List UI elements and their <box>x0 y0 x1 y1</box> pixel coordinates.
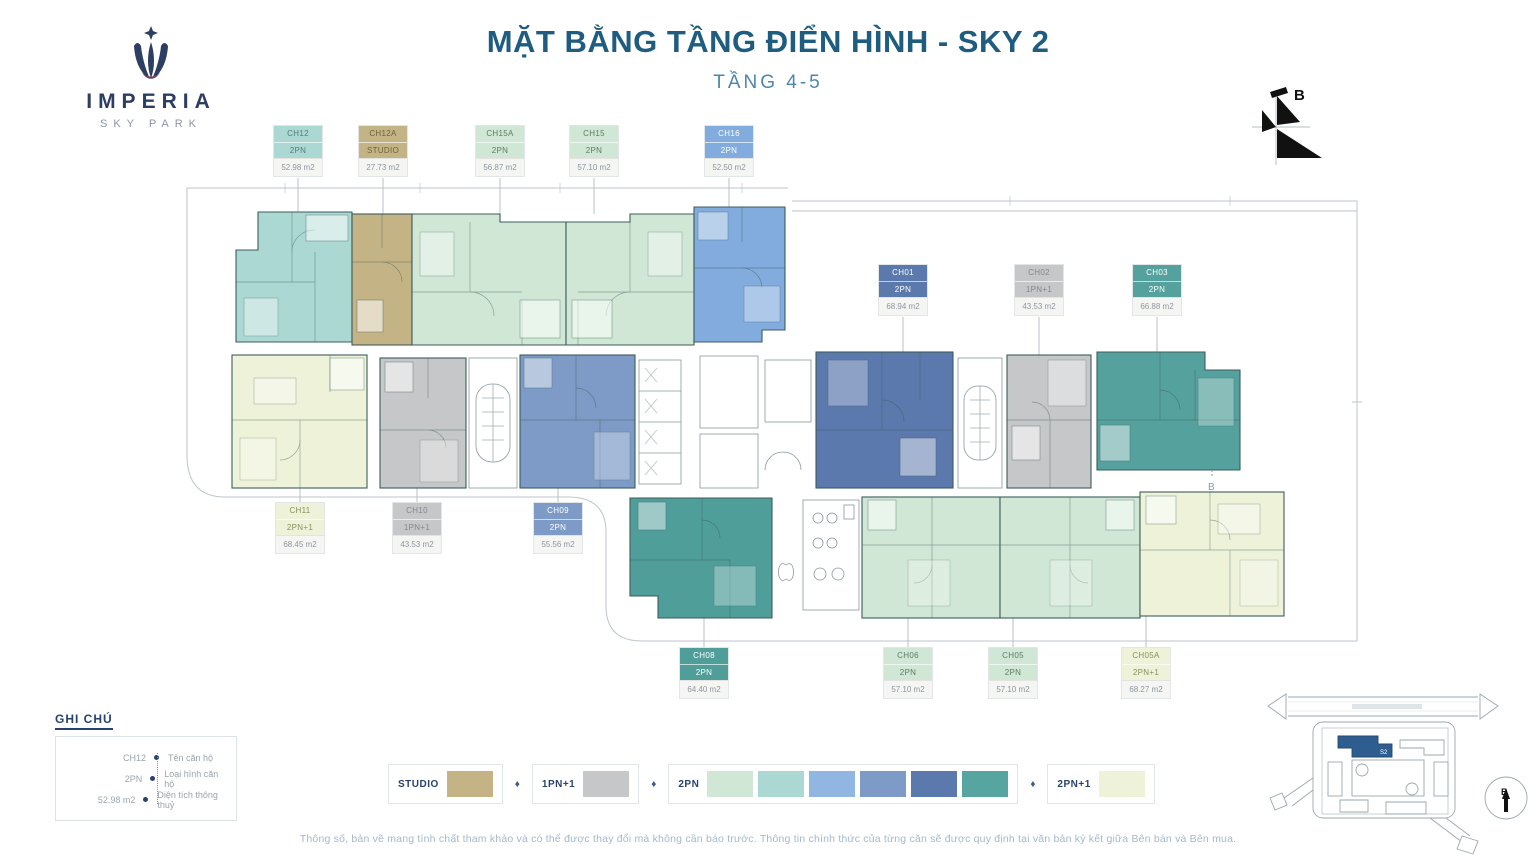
unit-id: CH12A <box>359 126 407 142</box>
notes-legend: GHI CHÚ CH12 Tên căn hộ 2PN Loại hình că… <box>55 710 237 821</box>
unit-shape-ch12 <box>236 212 352 342</box>
unit-area: 66.88 m2 <box>1133 297 1181 315</box>
unit-type: 1PN+1 <box>1015 281 1063 297</box>
unit-id: CH08 <box>680 648 728 664</box>
unit-card-ch01: CH01 2PN 68.94 m2 <box>879 265 927 315</box>
unit-card-ch15: CH15 2PN 57.10 m2 <box>570 126 618 176</box>
notes-key: CH12 <box>56 753 154 763</box>
notes-desc: Loại hình căn hộ <box>155 769 228 789</box>
unit-type: 2PN <box>705 142 753 158</box>
unit-shape-ch03 <box>1097 352 1240 470</box>
unit-type: 1PN+1 <box>393 519 441 535</box>
unit-type: 2PN <box>476 142 524 158</box>
unit-shape-ch02 <box>1007 355 1091 488</box>
notes-connector-line <box>157 753 158 804</box>
notes-desc: Diện tích thông thuỷ <box>148 790 228 810</box>
notes-key: 2PN <box>56 774 150 784</box>
unit-shape-ch08 <box>630 498 772 618</box>
notes-box: CH12 Tên căn hộ 2PN Loại hình căn hộ 52.… <box>55 736 237 821</box>
legend-label: STUDIO <box>398 779 439 790</box>
core-elevators <box>639 356 811 488</box>
notes-row: CH12 Tên căn hộ <box>56 747 228 768</box>
legend-swatch <box>758 771 804 797</box>
unit-card-ch08: CH08 2PN 64.40 m2 <box>680 648 728 698</box>
unit-id: CH02 <box>1015 265 1063 281</box>
stairwell-left <box>469 358 517 488</box>
brand-logo: IMPERIA SKY PARK <box>76 26 226 130</box>
lobby-area <box>779 500 860 610</box>
unit-area: 27.73 m2 <box>359 158 407 176</box>
unit-area: 43.53 m2 <box>1015 297 1063 315</box>
logo-emblem-icon <box>122 26 180 86</box>
unit-area: 57.10 m2 <box>884 680 932 698</box>
unit-shape-ch06 <box>862 497 1000 618</box>
unit-type: 2PN <box>884 664 932 680</box>
unit-shape-ch10 <box>380 358 466 488</box>
notes-desc: Tên căn hộ <box>159 753 213 763</box>
unit-area: 68.27 m2 <box>1122 680 1170 698</box>
diamond-separator-icon: ♦ <box>651 779 656 790</box>
unit-type: 2PN <box>534 519 582 535</box>
brand-name: IMPERIA <box>76 90 226 114</box>
unit-type: 2PN+1 <box>276 519 324 535</box>
legend-swatch <box>809 771 855 797</box>
unit-area: 68.45 m2 <box>276 535 324 553</box>
brand-tagline: SKY PARK <box>76 118 226 130</box>
notes-key: 52.98 m2 <box>56 795 143 805</box>
floorplan-page: B <box>0 0 1536 864</box>
stairwell-right <box>958 358 1002 488</box>
unit-area: 57.10 m2 <box>570 158 618 176</box>
diamond-separator-icon: ♦ <box>515 779 520 790</box>
unit-area: 57.10 m2 <box>989 680 1037 698</box>
unit-type: 2PN <box>570 142 618 158</box>
unit-card-ch02: CH02 1PN+1 43.53 m2 <box>1015 265 1063 315</box>
mini-sitemap: S2 B <box>1268 694 1527 854</box>
unit-id: CH15A <box>476 126 524 142</box>
unit-shape-ch01 <box>816 352 953 488</box>
unit-area: 52.98 m2 <box>274 158 322 176</box>
unit-area: 55.56 m2 <box>534 535 582 553</box>
unit-area: 68.94 m2 <box>879 297 927 315</box>
unit-card-ch15a: CH15A 2PN 56.87 m2 <box>476 126 524 176</box>
unit-id: CH12 <box>274 126 322 142</box>
legend-swatch <box>1099 771 1145 797</box>
unit-card-ch12a: CH12A STUDIO 27.73 m2 <box>359 126 407 176</box>
unit-shape-ch15 <box>566 214 694 345</box>
legend-label: 2PN+1 <box>1057 779 1090 790</box>
unit-id: CH01 <box>879 265 927 281</box>
legend-label: 2PN <box>678 779 699 790</box>
legend-swatch <box>583 771 629 797</box>
unit-card-ch05a: CH05A 2PN+1 68.27 m2 <box>1122 648 1170 698</box>
unit-type: 2PN+1 <box>1122 664 1170 680</box>
unit-card-ch03: CH03 2PN 66.88 m2 <box>1133 265 1181 315</box>
notes-row: 52.98 m2 Diện tích thông thuỷ <box>56 789 228 810</box>
unit-card-ch16: CH16 2PN 52.50 m2 <box>705 126 753 176</box>
unit-id: CH16 <box>705 126 753 142</box>
legend-swatch <box>707 771 753 797</box>
unit-id: CH11 <box>276 503 324 519</box>
unit-type: 2PN <box>680 664 728 680</box>
unit-shape-ch11 <box>232 355 367 488</box>
legend-group-studio: STUDIO <box>388 764 503 804</box>
diamond-separator-icon: ♦ <box>1030 779 1035 790</box>
unit-card-ch09: CH09 2PN 55.56 m2 <box>534 503 582 553</box>
unit-area: 43.53 m2 <box>393 535 441 553</box>
legend-label: 1PN+1 <box>542 779 575 790</box>
unit-id: CH09 <box>534 503 582 519</box>
sitemap-road-label <box>1352 704 1422 709</box>
notes-title: GHI CHÚ <box>55 712 113 730</box>
unit-area: 56.87 m2 <box>476 158 524 176</box>
svg-text:B: B <box>1294 87 1305 104</box>
unit-area: 64.40 m2 <box>680 680 728 698</box>
unit-id: CH10 <box>393 503 441 519</box>
type-legend: STUDIO ♦ 1PN+1 ♦ 2PN ♦ 2PN+1 <box>388 764 1155 804</box>
legend-group-1pn1: 1PN+1 <box>532 764 639 804</box>
legend-swatch <box>911 771 957 797</box>
section-marker: B <box>1208 470 1215 493</box>
unit-id: CH15 <box>570 126 618 142</box>
legend-swatch <box>860 771 906 797</box>
unit-shape-ch05a <box>1140 492 1284 616</box>
unit-card-ch12: CH12 2PN 52.98 m2 <box>274 126 322 176</box>
unit-id: CH05 <box>989 648 1037 664</box>
unit-type: 2PN <box>989 664 1037 680</box>
unit-card-ch10: CH10 1PN+1 43.53 m2 <box>393 503 441 553</box>
svg-text:B: B <box>1208 482 1215 493</box>
compass-icon: B <box>1252 87 1322 165</box>
unit-shape-ch16 <box>694 207 785 342</box>
unit-id: CH05A <box>1122 648 1170 664</box>
legend-group-2pn: 2PN <box>668 764 1018 804</box>
unit-area: 52.50 m2 <box>705 158 753 176</box>
unit-shape-ch15a <box>412 214 566 345</box>
unit-card-ch06: CH06 2PN 57.10 m2 <box>884 648 932 698</box>
legend-swatch <box>447 771 493 797</box>
unit-card-ch05: CH05 2PN 57.10 m2 <box>989 648 1037 698</box>
legend-group-2pn1: 2PN+1 <box>1047 764 1154 804</box>
unit-shape-ch12a <box>352 214 412 345</box>
unit-card-ch11: CH11 2PN+1 68.45 m2 <box>276 503 324 553</box>
unit-shape-ch05 <box>1000 497 1140 618</box>
unit-id: CH06 <box>884 648 932 664</box>
unit-shape-ch09 <box>520 355 635 488</box>
unit-type: 2PN <box>274 142 322 158</box>
legend-swatch <box>962 771 1008 797</box>
svg-text:S2: S2 <box>1380 750 1388 756</box>
unit-type: 2PN <box>879 281 927 297</box>
unit-id: CH03 <box>1133 265 1181 281</box>
unit-type: STUDIO <box>359 142 407 158</box>
disclaimer-text: Thông số, bản vẽ mang tính chất tham khả… <box>0 833 1536 845</box>
notes-row: 2PN Loại hình căn hộ <box>56 768 228 789</box>
unit-type: 2PN <box>1133 281 1181 297</box>
